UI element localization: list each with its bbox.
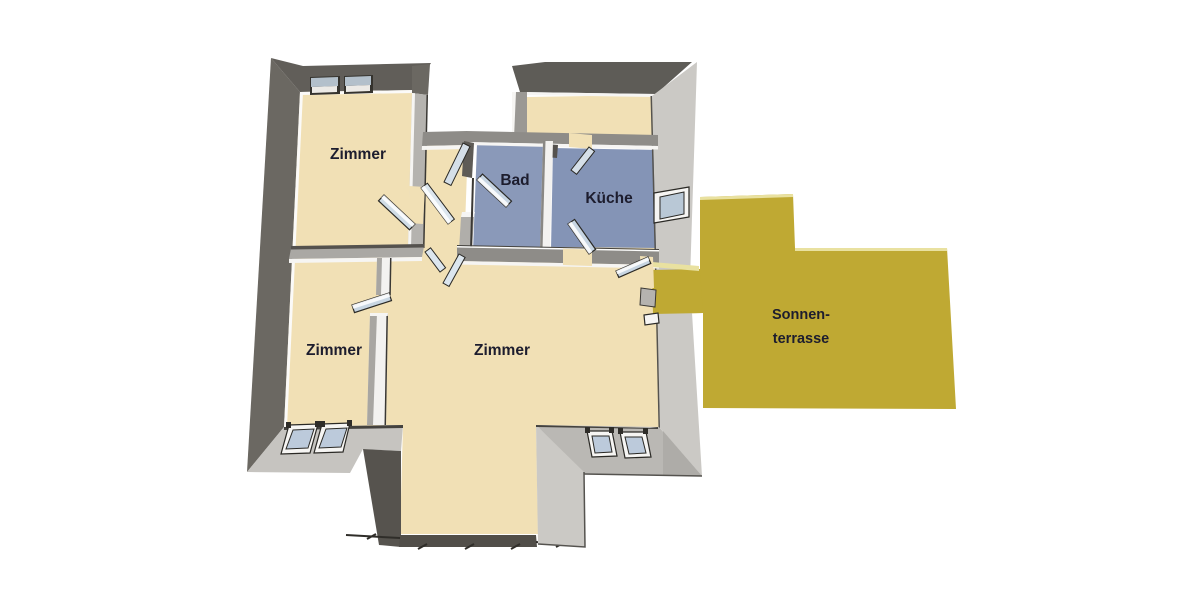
svg-text:Sonnen-: Sonnen- (772, 307, 830, 323)
svg-text:Zimmer: Zimmer (306, 342, 362, 359)
svg-text:Bad: Bad (500, 172, 529, 189)
svg-text:terrasse: terrasse (773, 331, 829, 347)
svg-text:Zimmer: Zimmer (330, 146, 386, 163)
svg-text:Zimmer: Zimmer (474, 342, 530, 359)
svg-text:Küche: Küche (585, 190, 633, 207)
